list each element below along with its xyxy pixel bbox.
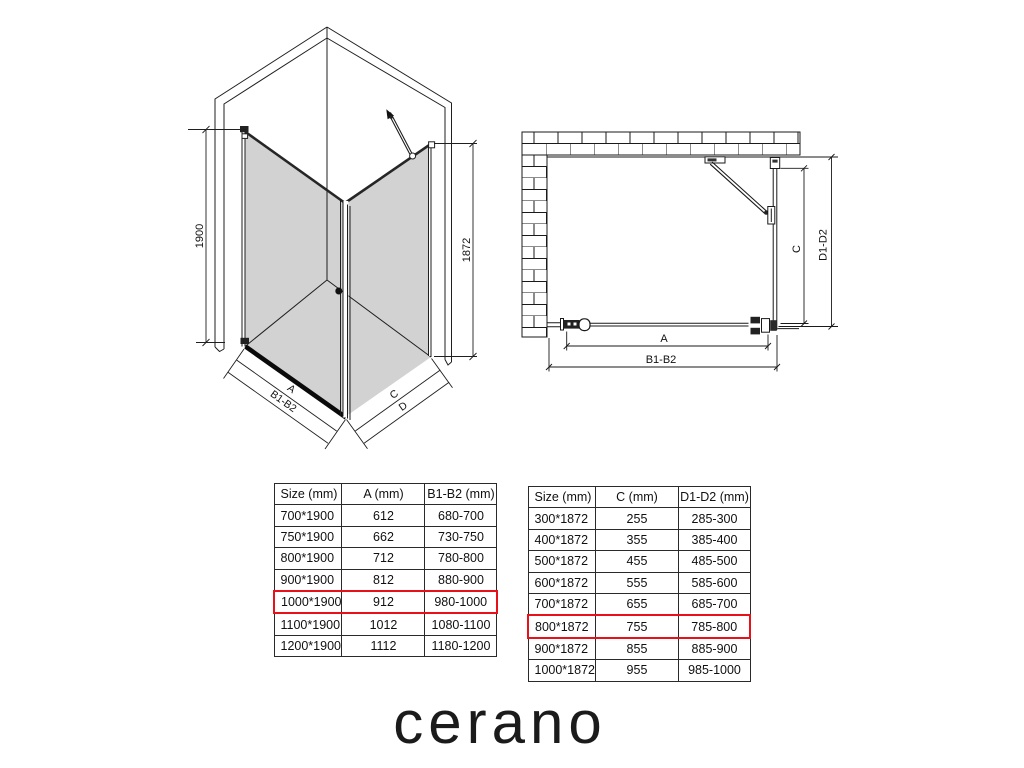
isometric-view: 1900 1872 A B1-B2 C D [170,10,500,455]
table-cell: 662 [342,526,425,547]
door-knob [335,288,342,295]
table-row: 750*1900662730-750 [274,526,497,547]
table-cell: 785-800 [678,615,750,637]
table-row: 300*1872255285-300 [528,508,750,529]
brick-wall-left [522,155,547,337]
table-cell: 900*1900 [274,569,342,591]
table-cell: 912 [342,591,425,613]
table-cell: 555 [595,572,678,593]
table-cell: 400*1872 [528,529,595,550]
dim-label-b1b2: B1-B2 [268,388,299,415]
hinge-bottom [241,338,250,344]
table-cell: 900*1872 [528,638,595,660]
side-glass-panel [345,144,431,418]
column-header: C (mm) [595,487,678,508]
table-cell: 1012 [342,613,425,635]
table-cell: 585-600 [678,572,750,593]
table-cell: 655 [595,593,678,615]
dim-label-d1d2: D1-D2 [818,229,830,261]
table-row: 700*1872655685-700 [528,593,750,615]
table-cell: 730-750 [425,526,497,547]
size-table-grid: Size (mm)C (mm)D1-D2 (mm)300*1872255285-… [527,486,751,682]
table-cell: 285-300 [678,508,750,529]
door-glass-panel [245,132,345,418]
table-row: 400*1872355385-400 [528,529,750,550]
table-cell: 780-800 [425,548,497,569]
column-header: Size (mm) [528,487,595,508]
column-header: A (mm) [342,484,425,505]
door-size-table: Size (mm)A (mm)B1-B2 (mm)700*1900612680-… [273,483,498,657]
table-row: 1100*190010121080-1100 [274,613,497,635]
table-header-row: Size (mm)A (mm)B1-B2 (mm) [274,484,497,505]
table-cell: 955 [595,660,678,681]
table-cell: 750*1900 [274,526,342,547]
table-cell: 985-1000 [678,660,750,681]
page: 1900 1872 A B1-B2 C D [0,0,1024,768]
table-cell: 1112 [342,635,425,656]
table-cell: 980-1000 [425,591,497,613]
side-panel [770,157,779,330]
size-table-grid: Size (mm)A (mm)B1-B2 (mm)700*1900612680-… [273,483,498,657]
table-cell: 1000*1900 [274,591,342,613]
side-panel-size-table: Size (mm)C (mm)D1-D2 (mm)300*1872255285-… [527,486,751,682]
table-row-highlighted: 800*1872755785-800 [528,615,750,637]
table-row: 1000*1872955985-1000 [528,660,750,681]
dimension-lines [546,154,838,372]
table-cell: 1000*1872 [528,660,595,681]
table-cell: 812 [342,569,425,591]
table-cell: 385-400 [678,529,750,550]
column-header: Size (mm) [274,484,342,505]
table-cell: 600*1872 [528,572,595,593]
table-cell: 1080-1100 [425,613,497,635]
table-cell: 855 [595,638,678,660]
brick-wall-top [522,132,800,155]
dim-label-b1b2: B1-B2 [646,354,677,366]
table-row: 800*1900712780-800 [274,548,497,569]
table-cell: 800*1872 [528,615,595,637]
table-cell: 455 [595,551,678,572]
table-cell: 680-700 [425,505,497,526]
closer-block-top [751,317,761,324]
closer-block-bottom [751,328,761,335]
table-cell: 685-700 [678,593,750,615]
table-header-row: Size (mm)C (mm)D1-D2 (mm) [528,487,750,508]
plan-view: A B1-B2 C D1-D2 [505,105,855,395]
table-cell: 500*1872 [528,551,595,572]
dim-label-c: C [791,245,803,253]
table-cell: 355 [595,529,678,550]
dim-label-1900: 1900 [194,224,206,248]
table-cell: 485-500 [678,551,750,572]
dim-label-a: A [660,333,668,345]
panel-corner-bracket [429,142,435,148]
column-header: B1-B2 (mm) [425,484,497,505]
table-cell: 700*1872 [528,593,595,615]
table-cell: 800*1900 [274,548,342,569]
table-cell: 1200*1900 [274,635,342,656]
table-row: 600*1872555585-600 [528,572,750,593]
table-row: 900*1872855885-900 [528,638,750,660]
door-hinge-profile [242,130,245,347]
support-arm [386,109,415,159]
dim-label-a: A [285,382,298,396]
table-cell: 300*1872 [528,508,595,529]
table-cell: 700*1900 [274,505,342,526]
hinge-clamp [579,319,590,331]
hinge-block [564,320,580,329]
table-row: 900*1900812880-900 [274,569,497,591]
table-row: 700*1900612680-700 [274,505,497,526]
brand-logo: cerano [0,688,1000,757]
table-cell: 255 [595,508,678,529]
table-cell: 1100*1900 [274,613,342,635]
table-row-highlighted: 1000*1900912980-1000 [274,591,497,613]
support-arm [705,157,775,224]
column-header: D1-D2 (mm) [678,487,750,508]
table-row: 500*1872455485-500 [528,551,750,572]
table-cell: 755 [595,615,678,637]
table-cell: 612 [342,505,425,526]
dim-label-1872: 1872 [461,238,473,262]
wall-profile [561,319,564,331]
table-row: 1200*190011121180-1200 [274,635,497,656]
table-cell: 880-900 [425,569,497,591]
door-assembly [548,317,800,335]
table-cell: 1180-1200 [425,635,497,656]
table-cell: 712 [342,548,425,569]
table-cell: 885-900 [678,638,750,660]
door-glass [590,323,749,326]
